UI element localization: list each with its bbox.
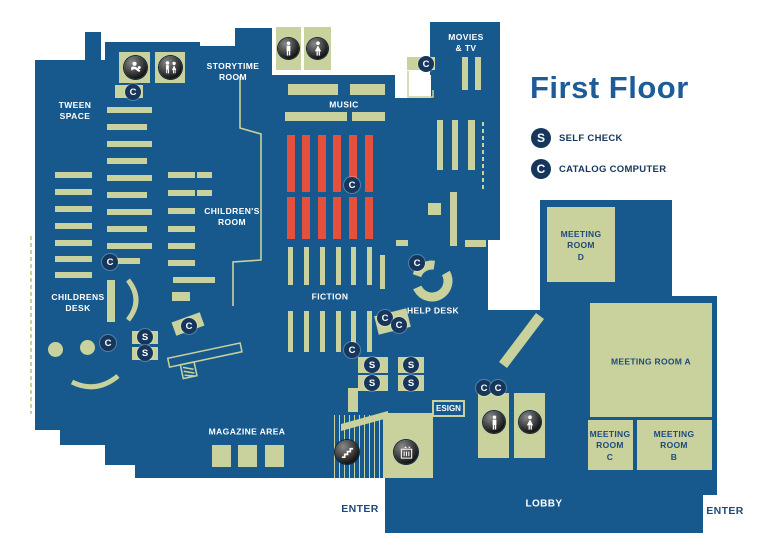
esign-kiosk: ESIGN [432,400,465,417]
self-check-badge: S [137,345,153,361]
family-restroom-icon [159,56,182,79]
lobby-area [703,478,717,495]
bookshelf [107,107,152,113]
bookshelf [350,84,385,95]
catalog-computer-badge: C [391,317,407,333]
mens-restroom-icon [278,38,299,59]
bookshelf [107,243,152,249]
feature-bookshelf [287,135,295,192]
bookshelf [107,175,152,181]
feature-bookshelf [302,135,310,192]
floor-plan: First Floor S SELF CHECK C CATALOG COMPU… [0,0,762,548]
catalog-computer-badge: C [100,335,116,351]
bookshelf [107,192,147,198]
bookshelf [55,272,92,278]
bookshelf [452,120,458,170]
bookshelf [265,445,284,467]
bookshelf [172,292,190,301]
desk-panel [348,388,358,412]
feature-bookshelf [287,197,295,239]
mens-restroom-icon [483,411,505,433]
label-meeting-room-a: MEETING ROOM A [611,356,691,367]
bookshelf [107,209,152,215]
bookshelf [468,120,475,170]
catalog-computer-badge: C [181,318,197,334]
bookshelf [336,247,341,285]
bookshelf [475,57,481,90]
bookshelf [304,247,309,285]
wall-notch [395,75,431,98]
meeting-wing [540,300,590,478]
bookshelf [428,203,441,215]
label-childrens-room: CHILDREN'SROOM [204,206,260,228]
bookshelf [212,445,231,467]
wall-notch [488,240,500,310]
bookshelf [450,192,457,246]
self-check-badge: S [137,329,153,345]
feature-bookshelf [349,197,357,239]
label-magazine-area: MAGAZINE AREA [209,426,286,437]
legend-catalog-badge: C [531,159,551,179]
bookshelf [304,311,309,352]
bookshelf [55,256,92,262]
bookshelf [288,311,293,352]
label-lobby: LOBBY [526,498,563,511]
bookshelf [285,112,347,121]
bookshelf [465,240,486,247]
bookshelf [352,112,385,121]
bookshelf [320,247,325,285]
label-tween-space: TWEENSPACE [59,100,92,122]
legend-self-check-badge: S [531,128,551,148]
bookshelf [107,141,152,147]
label-help-desk: HELP DESK [407,305,459,316]
label-meeting-room-c: MEETINGROOMC [590,429,631,463]
feature-bookshelf [365,135,373,192]
label-storytime-room: STORYTIMEROOM [207,61,260,83]
catalog-computer-badge: C [102,254,118,270]
bookshelf [168,226,195,232]
bookshelf [55,189,92,195]
catalog-computer-badge: C [125,84,141,100]
bookshelf [336,311,341,352]
feature-bookshelf [333,135,341,192]
self-check-badge: S [403,375,419,391]
bookshelf [107,158,147,164]
feature-bookshelf [333,197,341,239]
floor-area [60,430,105,445]
label-childrens-desk: CHILDRENSDESK [51,292,104,314]
catalog-computer-badge: C [490,380,506,396]
bookshelf [55,223,92,229]
self-check-badge: S [403,357,419,373]
floor-area [105,415,135,465]
bookshelf [367,247,372,285]
womens-restroom-icon [307,38,328,59]
label-music: MUSIC [329,99,358,110]
bookshelf [197,190,212,196]
bookshelf [197,172,212,178]
legend-catalog-label: CATALOG COMPUTER [559,164,666,175]
elevator-icon [394,440,418,464]
bookshelf [351,247,356,285]
bookshelf [437,120,443,170]
bookshelf [55,206,92,212]
bookshelf [380,255,385,289]
feature-bookshelf [365,197,373,239]
bookshelf [168,190,195,196]
bookshelf [396,240,408,246]
round-table [80,340,95,355]
bookshelf [55,240,92,246]
bookshelf [320,311,325,352]
bookshelf [107,226,147,232]
catalog-computer-badge: C [344,342,360,358]
womens-restroom-icon [519,411,541,433]
page-title: First Floor [530,70,689,106]
feature-bookshelf [318,135,326,192]
bookshelf [462,57,468,90]
bookshelf [173,277,215,283]
bookshelf [107,124,147,130]
catalog-computer-badge: C [409,255,425,271]
bookshelf [168,172,195,178]
round-table [48,342,63,357]
label-movies-tv: MOVIES& TV [448,32,483,54]
bookshelf [168,260,195,266]
bookshelf [168,208,195,214]
feature-bookshelf [318,197,326,239]
legend-self-check-label: SELF CHECK [559,133,623,144]
desk-panel [107,280,115,322]
floor-area [135,415,500,478]
catalog-computer-badge: C [418,56,434,72]
bookshelf [238,445,257,467]
feature-bookshelf [302,197,310,239]
bookshelf [168,243,195,249]
bookshelf [288,247,293,285]
bookshelf [288,84,338,95]
entrance-label-left: ENTER [341,503,379,515]
self-check-badge: S [364,357,380,373]
stairs-icon [335,440,359,464]
self-check-badge: S [364,375,380,391]
bookshelf [367,311,372,352]
catalog-computer-badge: C [344,177,360,193]
label-meeting-room-d: MEETINGROOMD [561,229,602,263]
baby-changing-icon [124,56,147,79]
label-meeting-room-b: MEETINGROOMB [654,429,695,463]
label-fiction: FICTION [312,291,349,302]
bookshelf [55,172,92,178]
entrance-label-right: ENTER [706,505,744,517]
